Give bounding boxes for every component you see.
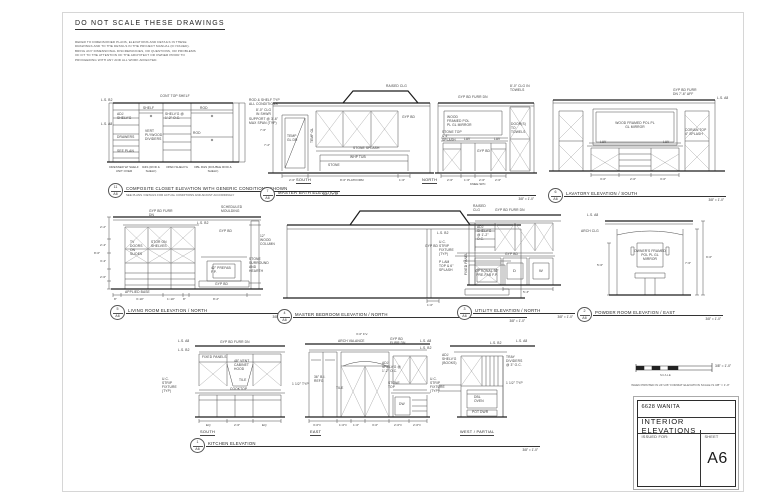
annotation: L.S. B2 (420, 347, 432, 351)
detail-bubble: 2 A6 (577, 307, 592, 322)
annotation: COOKTOP (230, 388, 247, 392)
annotation: APPLIED BASE (125, 291, 150, 295)
annotation: WHP TUB (350, 156, 366, 160)
annotation: ADJ SHELV'G (117, 113, 137, 121)
annotation: L.S. B2 (101, 99, 113, 103)
drawing-living-room: GYP BD FURR DN L.S. B2 SCHEDULED MOULDIN… (103, 203, 293, 323)
sub-label-west-partial: WEST / PARTIAL (460, 429, 494, 436)
annotation: STONE SPLASH (353, 147, 379, 151)
dimension-label: 8'-0" PLATFORM (340, 178, 364, 182)
annotation: ADJ SHELV'G (BOOKS) (442, 354, 458, 366)
title-block: 6628 WANITA INTERIOR ELEVATIONS ISSUED F… (633, 396, 739, 490)
annotation: 8'-0" CLG IN SHWR (256, 109, 272, 117)
title-subtext: SEE PLANS / DETAILS FOR ACTUAL CONDITION… (126, 193, 234, 197)
title-text: MASTER BEDROOM ELEVATION / NORTH (295, 312, 388, 317)
annotation: L.S. A8 (420, 340, 431, 344)
annotation: STONE (328, 164, 340, 168)
detail-bubble: 4 A6 (277, 309, 292, 324)
annotation: OWNER'S FRAMED POL PL GL MIRROR (634, 250, 666, 262)
dimension-label: EQ (206, 423, 210, 427)
annotation: LAV (494, 138, 500, 142)
dimension-label: 2'-6" (100, 275, 106, 279)
dimension-label: 7'-2" (264, 143, 270, 147)
sheet-number: A6 (701, 450, 735, 468)
annotation: GYP BD FURR DN 7'-6" AFF (673, 89, 701, 97)
dimension-label: 3'-0" F.V. (356, 332, 368, 336)
detail-bubble: 6 A6 (548, 188, 563, 203)
annotation: GYP BD FURR DN (390, 338, 412, 346)
annotation: GYP BD FURR DN (458, 96, 488, 100)
annotation: LAV (600, 141, 606, 145)
dimension-label: KNEE SPC (470, 182, 486, 186)
master-bath-line-art (258, 83, 538, 183)
title-text: LAVATORY ELEVATION / SOUTH (566, 191, 638, 196)
annotation: SCHEDULED MOULDING (221, 206, 247, 214)
dimension-label: 2'-0"± (394, 423, 402, 427)
dimension-label: 2'-2" (100, 225, 106, 229)
annotation: U.C. STRIP FIXTURE (TYP) (162, 378, 180, 394)
dimension-label: 3'-10" (136, 297, 144, 301)
annotation: GYP BD (505, 253, 518, 257)
annotation: STONE TOP (388, 382, 402, 390)
annotation: STOR ON SHELVES (151, 241, 169, 249)
detail-number: 1 (193, 439, 203, 447)
annotation: 12" WOOD COLUMN (260, 235, 274, 247)
annotation: GYP BD (402, 116, 415, 120)
title-text: POWDER ROOM ELEVATION / EAST (595, 310, 675, 315)
annotation: CONT TOP SHELF (160, 95, 190, 99)
annotation: L.S. A8 (101, 123, 112, 127)
scale-bar-label: 3/8" = 1'-0" (715, 364, 731, 368)
dimension-label: 1'-10" (167, 297, 175, 301)
drawing-title: 5 A6 LIVING ROOM ELEVATION / NORTH 3/8" … (110, 305, 290, 323)
detail-sheet: A6 (578, 316, 591, 321)
annotation: ADJ SHELV'G @ 1'-2" O.C. (382, 362, 402, 374)
annotation: GYP BD FURR DN (495, 209, 525, 213)
annotation: 8'-0" CLG IN TOWELS (510, 85, 536, 93)
annotation: DOOR(S) TO TOWELS (511, 123, 529, 135)
detail-sheet: A6 (458, 314, 471, 319)
dimension-label: 1'-6" (399, 178, 405, 182)
title-scale: 3/8" = 1'-0" (518, 197, 534, 201)
dimension-label: EQ (262, 423, 266, 427)
annotation: L.S. A8 (587, 214, 598, 218)
do-not-scale-warning: DO NOT SCALE THESE DRAWINGS (75, 20, 225, 30)
annotation: SHELF (143, 107, 154, 111)
detail-number: 3 (460, 306, 470, 314)
title-text: MASTER BATH ELEVATION (278, 190, 338, 195)
annotation: L.S. A8 (516, 340, 527, 344)
detail-bubble: 11 A6 (108, 183, 123, 198)
dimension-label: 8" (183, 297, 186, 301)
annotation: CORIAN TOP 4" SPLASH (685, 129, 707, 137)
annotation: TEMP GL (311, 128, 315, 143)
detail-sheet: A6 (109, 192, 122, 197)
annotation: SHELV'G @ 1'-2" O.C. (165, 113, 189, 121)
detail-bubble: 3 A6 (457, 305, 472, 320)
detail-sheet: A6 (261, 196, 274, 201)
annotation: FIXED PANEL (465, 253, 469, 275)
dimension-label: 7'-6" (685, 261, 691, 265)
annotation: L.S. B2 (490, 342, 502, 346)
annotation: GYP BD (477, 150, 490, 154)
title-scale: 3/8" = 1'-0" (705, 317, 721, 321)
title-scale: 3/8" = 1'-0" (708, 198, 724, 202)
annotation: U.C. STRIP FIXTURE (TYP) (439, 241, 455, 257)
dimension-label: 2'-6" (495, 178, 501, 182)
detail-number: 7 (263, 188, 273, 196)
annotation: L.S. B2 (197, 222, 209, 226)
annotation: 48" VENT CABINET HOOD (234, 360, 254, 372)
dimension-label: 3'-0"± (313, 423, 321, 427)
title-scale: 3/8" = 1'-0" (557, 315, 573, 319)
column-label: OPEN SHELV'G (164, 166, 190, 170)
title-scale: 3/8" = 1'-0" (522, 448, 538, 452)
drawing-kitchen: L.S. A8 L.S. B2 GYP BD FURR DN FIXED PAN… (150, 330, 550, 457)
annotation: 42" PREFAB F.P. (211, 267, 231, 275)
dimension-label: 9'-0" (706, 255, 712, 259)
annotation: STONE TOP & 4" SPLASH (442, 131, 462, 143)
annotation: GYP BD (425, 245, 438, 249)
annotation: WOOD FRAMED POL PL GL MIRROR (447, 116, 473, 128)
drawing-master-bath: 8'-0" CLG IN SHWR RAISED CLG GYP BD TEMP… (258, 83, 538, 203)
annotation: WOOD FRAMED POL PL GL MIRROR (615, 122, 655, 130)
sub-label-east: EAST (310, 429, 321, 436)
general-note: REFER TO DIMENSIONED PLANS, ELEVATIONS A… (75, 40, 196, 62)
sub-label-north: NORTH (422, 177, 437, 184)
annotation: LAV (464, 138, 470, 142)
dimension-label: 1'-0"± (339, 423, 347, 427)
dimension-label: 3'-4" (100, 259, 106, 263)
drawing-title: 3 A6 UTILITY ELEVATION / NORTH 3/8" = 1'… (457, 305, 575, 323)
annotation: ROD (193, 132, 201, 136)
dimension-label: 3'-0" (600, 177, 606, 181)
annotation: ARCH VALANCE (338, 340, 365, 344)
annotation: 36" B.I. REFG (314, 376, 330, 384)
title-rule (206, 446, 540, 447)
annotation: DRAWERS (117, 136, 135, 140)
detail-number: 5 (113, 306, 123, 314)
annotation: TILE (336, 387, 343, 391)
annotation: TRAY DIVIDERS @ 3" O.C. (506, 356, 526, 368)
sub-label-south: SOUTH (296, 177, 311, 184)
annotation: GYP BD FURR DN (220, 341, 250, 345)
annotation: P LAM TOP & 6" SPLASH (439, 261, 455, 273)
drawing-title: 1 A6 KITCHEN ELEVATION 3/8" = 1'-0" (190, 438, 540, 456)
annotation: L.S. A8 (178, 340, 189, 344)
detail-number: 2 (580, 308, 590, 316)
annotation: TEMP GL DR (287, 135, 301, 143)
scale-bar-caption: SCALE (660, 373, 671, 377)
drawing-utility: GYP BD FURR DN ADJ SHELV'G @ 1'-2" O.C. … (455, 203, 575, 323)
annotation: ADJ SHELV'G @ 1'-2" O.C. (477, 226, 494, 242)
drawing-powder-room: L.S. A8 ARCH CLG OWNER'S FRAMED POL PL G… (575, 203, 725, 325)
dimension-label: 2'-6" (447, 178, 453, 182)
annotation: L.S. A8 (717, 97, 728, 101)
annotation: 1 1/2" TYP (292, 383, 309, 387)
dimension-label: 5'-3" (523, 290, 529, 294)
sub-label-south: SOUTH (200, 429, 215, 436)
detail-bubble: 1 A6 (190, 438, 205, 453)
living-room-line-art (103, 203, 273, 303)
drawing-lavatory: GYP BD FURR DN 7'-6" AFF L.S. A8 WOOD FR… (545, 85, 730, 203)
dimension-label: 5'-6" (597, 263, 603, 267)
dimension-label: 2'-0" (630, 177, 636, 181)
note-line: PROCEEDING WITH ANY AND ALL WORK AFFECTE… (75, 58, 196, 62)
dimension-label: 8'-2" (213, 297, 219, 301)
column-label: DBL R&S (DOUBLE ROD & SHELF) (191, 166, 235, 174)
annotation: POT DWR (472, 411, 488, 415)
dimension-label: 2'-6" (289, 178, 295, 182)
detail-number: 6 (551, 189, 561, 197)
drawing-sheet: DO NOT SCALE THESE DRAWINGS REFER TO DIM… (0, 0, 773, 500)
dimension-label: 2'-0"± (413, 423, 421, 427)
title-text: KITCHEN ELEVATION (208, 441, 256, 446)
annotation: L.S. B2 (178, 349, 190, 353)
issued-for-label: ISSUED FOR: (638, 430, 701, 486)
dimension-label: 8" (114, 297, 117, 301)
dimension-label: 1'-0" (353, 423, 359, 427)
detail-sheet: A6 (191, 447, 204, 452)
annotation: FIXED PANELS (202, 356, 227, 360)
annotation: SEE PLAN (117, 150, 134, 154)
title-text: UTILITY ELEVATION / NORTH (475, 308, 541, 313)
dimension-label: 8'-0" (94, 251, 100, 255)
drawing-title: 2 A6 POWDER ROOM ELEVATION / EAST 3/8" =… (577, 307, 723, 325)
annotation: L.S. B2 (437, 232, 449, 236)
dimension-label: 7'-6" (260, 128, 266, 132)
annotation: TV DOORS ON SLIDES (130, 241, 146, 257)
title-text: LIVING ROOM ELEVATION / NORTH (128, 308, 207, 313)
annotation: STONE SURROUND AND HEARTH (249, 258, 271, 274)
title-block-inner: 6628 WANITA INTERIOR ELEVATIONS ISSUED F… (637, 400, 736, 487)
annotation: DBL OVEN (474, 396, 488, 404)
detail-sheet: A6 (111, 314, 124, 319)
column-label: DRESSER W/ SHELF UNIT OVER (109, 166, 139, 174)
sheet-cell: SHEET A6 (700, 430, 735, 486)
annotation: GYP BD FURR DN (149, 210, 175, 218)
detail-bubble: 7 A6 (260, 187, 275, 202)
detail-number: 11 (111, 184, 121, 192)
annotation: DW (399, 403, 405, 407)
print-scale-note: WHEN PRINTED IN 24"x36" FORMAT ELEVATION… (618, 383, 743, 387)
annotation: ROD (200, 107, 208, 111)
annotation: TILE (239, 379, 246, 383)
annotation: D (513, 269, 516, 274)
annotation: GYP BD (215, 283, 228, 287)
detail-bubble: 5 A6 (110, 305, 125, 320)
annotation: GYP BD (219, 230, 232, 234)
annotation: ARCH CLG (581, 230, 599, 234)
detail-sheet: A6 (549, 197, 562, 202)
dimension-label: 2'-6" (234, 423, 240, 427)
annotation: VERT PLYWOOD DIVIDERS (145, 130, 163, 142)
graphic-scale-bar: 3/8" = 1'-0" SCALE WHEN PRINTED IN 24"x3… (618, 360, 743, 390)
detail-number: 4 (280, 310, 290, 318)
column-label: R&S (ROD & SHELF) (140, 166, 162, 174)
annotation: U.C. STRIP FIXTURE (TYP) (430, 378, 446, 394)
annotation: RAISED CLG (386, 85, 407, 89)
dimension-label: 1'-0" (427, 303, 433, 307)
dimension-label: 2'-4" (100, 243, 106, 247)
detail-sheet: A6 (278, 318, 291, 323)
annotation: LAV (663, 141, 669, 145)
dimension-label: 3'-0" (372, 423, 378, 427)
annotation: W (539, 269, 543, 274)
annotation: 1 1/2" TYP (506, 382, 523, 386)
sheet-label: SHEET (705, 434, 719, 439)
dimension-label: 3'-0" (660, 177, 666, 181)
